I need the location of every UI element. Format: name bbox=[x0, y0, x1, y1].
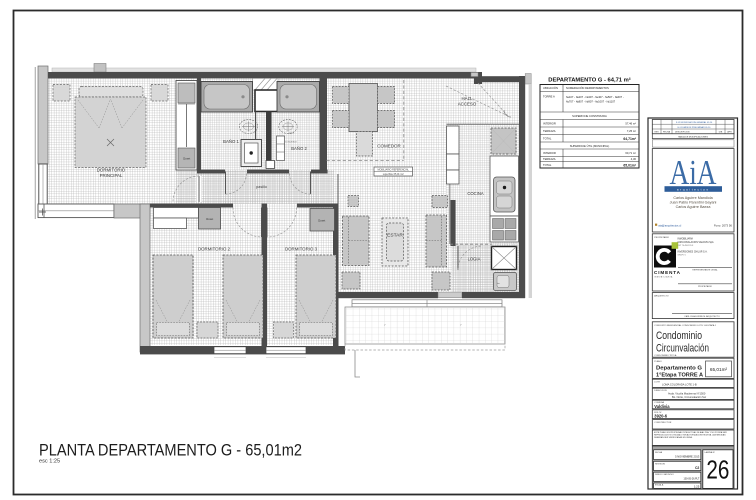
svg-text:65,01m²: 65,01m² bbox=[710, 367, 728, 372]
svg-text:SUPERFICIE ÚTIL (MUNICIPAL): SUPERFICIE ÚTIL (MUNICIPAL) bbox=[570, 144, 610, 148]
svg-text:HALL: HALL bbox=[462, 96, 474, 101]
svg-text:Valdivia: Valdivia bbox=[654, 404, 670, 409]
svg-text:◜: ◜ bbox=[384, 323, 386, 328]
svg-text:COCINA: COCINA bbox=[467, 191, 483, 196]
svg-text:1:25: 1:25 bbox=[694, 484, 700, 488]
svg-text:№107 - №207 - №307 - №407 - №5: №107 - №207 - №307 - №407 - №507 - №607 … bbox=[566, 95, 624, 99]
svg-text:DEBERAN SER VERIFICADAS EN OBR: DEBERAN SER VERIFICADAS EN OBRA. bbox=[654, 436, 693, 439]
svg-text:Carlos Aguirre Mandiola: Carlos Aguirre Mandiola bbox=[673, 196, 713, 200]
svg-text:DEPARTAMENTO G - 64,71 m²: DEPARTAMENTO G - 64,71 m² bbox=[548, 77, 631, 84]
svg-text:Departamento G: Departamento G bbox=[656, 365, 702, 371]
svg-text:Bo. Norte, Circunvalación Sur: Bo. Norte, Circunvalación Sur bbox=[672, 395, 706, 399]
svg-text:DESCRIPCION: DESCRIPCION bbox=[675, 131, 690, 133]
svg-text:REV: REV bbox=[654, 131, 659, 133]
svg-text:TORRE A: TORRE A bbox=[543, 95, 555, 99]
svg-text:SUPERFICIE CONSTRUIDA: SUPERFICIE CONSTRUIDA bbox=[572, 114, 607, 118]
svg-text:FECHA: FECHA bbox=[663, 130, 671, 133]
svg-text:PROPIETARIO: PROPIETARIO bbox=[654, 236, 669, 239]
svg-text:1°Etapa TORRE A: 1°Etapa TORRE A bbox=[656, 372, 704, 378]
svg-text:MOBILIARIO REFERENCIAL: MOBILIARIO REFERENCIAL bbox=[378, 168, 410, 171]
svg-text:TABLA DE MODIFICACIONES: TABLA DE MODIFICACIONES bbox=[678, 135, 709, 138]
svg-text:ARQUITECTO: ARQUITECTO bbox=[654, 295, 669, 298]
svg-text:LOMA COLORADA LOTE 1-B: LOMA COLORADA LOTE 1-B bbox=[662, 383, 697, 387]
svg-text:Condominio: Condominio bbox=[656, 330, 702, 342]
svg-text:AiA: AiA bbox=[670, 153, 718, 192]
svg-text:PLANTA DEPARTAMENTO G - 65,01m: PLANTA DEPARTAMENTO G - 65,01m2 bbox=[39, 441, 302, 460]
svg-text:Closet: Closet bbox=[206, 217, 214, 221]
svg-text:INVERSIONES CHILUR S.A.: INVERSIONES CHILUR S.A. bbox=[678, 250, 708, 253]
svg-text:DORMITORIO 2: DORMITORIO 2 bbox=[198, 247, 231, 252]
svg-text:CONJUNTO RESIDENCIAL CONDOMINI: CONJUNTO RESIDENCIAL CONDOMINIO LOTE 1-B… bbox=[654, 324, 717, 327]
svg-text:E 01 EMISION PRELIMINAR 05.1: E 01 EMISION PRELIMINAR 05.10 bbox=[678, 126, 712, 129]
svg-text:PLANO: PLANO bbox=[654, 360, 662, 363]
svg-text:REPRODUCIDO NI UTILIZADO SIN A: REPRODUCIDO NI UTILIZADO SIN AUTORIZACIO… bbox=[654, 433, 726, 436]
svg-text:64,71m²: 64,71m² bbox=[623, 137, 636, 141]
svg-text:pasillo: pasillo bbox=[256, 184, 267, 189]
svg-text:arquitectos: arquitectos bbox=[677, 187, 710, 191]
svg-text:4,30: 4,30 bbox=[631, 157, 637, 161]
svg-text:TOTAL: TOTAL bbox=[543, 137, 552, 141]
svg-text:ESTAR: ESTAR bbox=[387, 233, 403, 239]
svg-text:3920-6: 3920-6 bbox=[654, 413, 667, 418]
svg-text:Closet: Closet bbox=[183, 157, 191, 161]
svg-text:CONDOMINIO TIPO A: CONDOMINIO TIPO A bbox=[654, 354, 677, 357]
svg-text:7,25 m²: 7,25 m² bbox=[627, 129, 636, 133]
svg-text:REPRESENTANTE LEGAL: REPRESENTANTE LEGAL bbox=[692, 269, 718, 272]
svg-text:C2: C2 bbox=[695, 466, 699, 470]
svg-text:DIRECCION: DIRECCION bbox=[654, 390, 667, 392]
svg-text:F 02 MODIFICACION GENERAL 09.: F 02 MODIFICACION GENERAL 09.10 bbox=[676, 121, 713, 124]
svg-text:ESCALA: ESCALA bbox=[655, 484, 664, 487]
svg-text:26: 26 bbox=[706, 455, 729, 485]
svg-text:CIMENTA: CIMENTA bbox=[654, 270, 681, 275]
svg-text:Circunvalación: Circunvalación bbox=[656, 343, 709, 355]
svg-text:CARLOS AGUIRRE M. ARQUITECTO: CARLOS AGUIRRE M. ARQUITECTO bbox=[684, 315, 720, 318]
svg-text:COMEDOR: COMEDOR bbox=[377, 144, 401, 149]
svg-text:APR: APR bbox=[727, 130, 732, 133]
svg-text:INMOBILIARIA: INMOBILIARIA bbox=[654, 276, 673, 279]
svg-text:Carlos Aguirre Baeza: Carlos Aguirre Baeza bbox=[676, 205, 712, 209]
svg-text:CIRCUNVALACION VALDIVIA SpA: CIRCUNVALACION VALDIVIA SpA bbox=[678, 241, 715, 244]
svg-text:DIBUJO / ARCHIVO: DIBUJO / ARCHIVO bbox=[655, 473, 674, 476]
svg-text:INTERIOR: INTERIOR bbox=[543, 151, 556, 155]
svg-text:100-05-26.PLT: 100-05-26.PLT bbox=[684, 478, 700, 481]
svg-text:TERRAZA: TERRAZA bbox=[543, 157, 556, 161]
svg-text:5 NOVIEMBRE 2013: 5 NOVIEMBRE 2013 bbox=[675, 455, 700, 459]
svg-text:№707 - №807 - №907 - №1007 - №: №707 - №807 - №907 - №1007 - №1107 bbox=[566, 100, 616, 104]
svg-text:Avda. Vicuña Mackenna N°1500: Avda. Vicuña Mackenna N°1500 bbox=[668, 391, 706, 395]
svg-text:◜: ◜ bbox=[460, 323, 462, 328]
svg-text:65,01m²: 65,01m² bbox=[623, 163, 636, 167]
svg-text:Juan Pablo Parentini Gayani: Juan Pablo Parentini Gayani bbox=[670, 200, 717, 204]
svg-text:ACCESO: ACCESO bbox=[458, 102, 477, 107]
svg-text:aia@arquitectos.cl: aia@arquitectos.cl bbox=[658, 223, 681, 227]
svg-text:Fono: 2073 56: Fono: 2073 56 bbox=[714, 223, 732, 227]
svg-text:CONSTRUCTOR: CONSTRUCTOR bbox=[654, 422, 671, 424]
svg-text:Closet: Closet bbox=[318, 219, 326, 223]
svg-text:superficie 65,01 m2: superficie 65,01 m2 bbox=[383, 173, 405, 176]
svg-text:TOTAL: TOTAL bbox=[543, 163, 552, 167]
svg-text:INMOBILIARIA: INMOBILIARIA bbox=[678, 238, 694, 241]
svg-text:ESTE PLANO ES PROPIEDAD INTELE: ESTE PLANO ES PROPIEDAD INTELECTUAL DE A… bbox=[654, 431, 727, 434]
svg-text:DORMITORIO 3: DORMITORIO 3 bbox=[285, 247, 318, 252]
svg-text:esc 1:25: esc 1:25 bbox=[39, 459, 60, 465]
svg-text:PROPIETARIO: PROPIETARIO bbox=[698, 285, 712, 288]
svg-text:57,46 m²: 57,46 m² bbox=[625, 122, 636, 126]
svg-text:REVISION: REVISION bbox=[655, 463, 665, 465]
svg-text:FECHA: FECHA bbox=[655, 451, 663, 454]
svg-text:PRINCIPAL: PRINCIPAL bbox=[100, 173, 123, 178]
svg-text:60,71 m²: 60,71 m² bbox=[625, 151, 636, 155]
svg-text:GRUPO I.: GRUPO I. bbox=[678, 254, 687, 256]
svg-text:INTERIOR: INTERIOR bbox=[543, 122, 556, 126]
svg-text:BAÑO 2: BAÑO 2 bbox=[291, 146, 307, 151]
svg-text:DIB: DIB bbox=[719, 131, 723, 133]
svg-text:DORMITORIO: DORMITORIO bbox=[97, 168, 126, 173]
svg-text:LOGIA: LOGIA bbox=[468, 257, 481, 262]
svg-text:RUT 76.458.223-K: RUT 76.458.223-K bbox=[678, 245, 694, 247]
svg-text:TERRAZA: TERRAZA bbox=[543, 129, 556, 133]
svg-text:LOTE: LOTE bbox=[654, 381, 660, 383]
svg-text:BAÑO 1: BAÑO 1 bbox=[223, 139, 239, 144]
svg-text:VANIT.: VANIT. bbox=[288, 132, 295, 135]
